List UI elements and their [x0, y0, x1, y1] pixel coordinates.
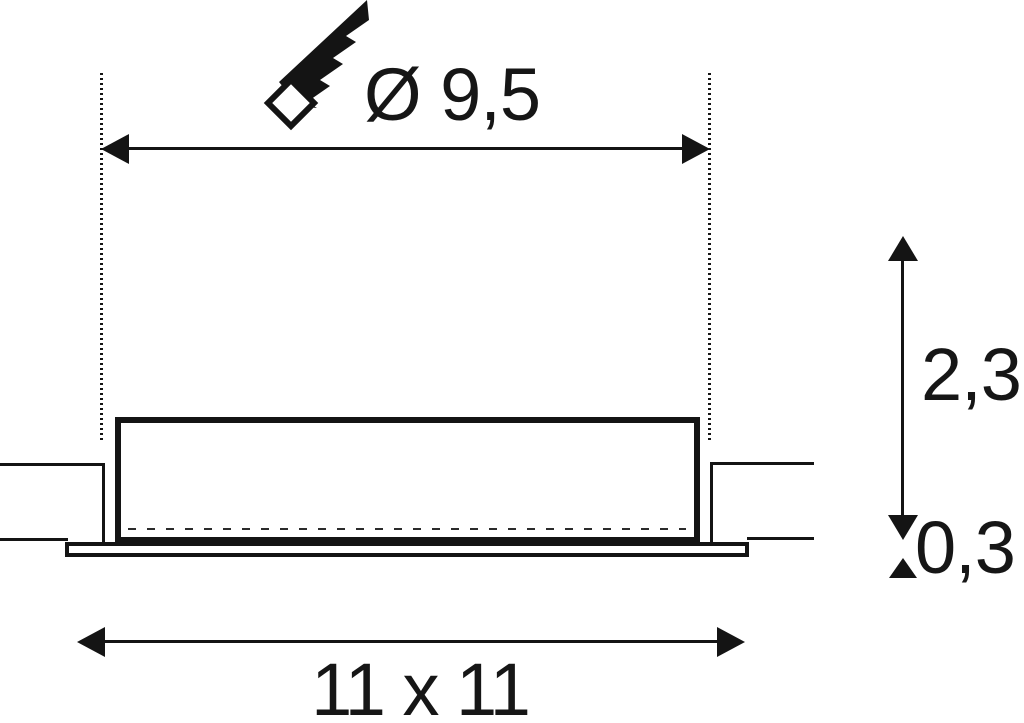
- fixture-housing-body: [115, 417, 700, 543]
- dimension-line-depth: [901, 255, 904, 520]
- extension-line-left: [100, 73, 103, 443]
- arrowhead-flange-bottom: [889, 558, 917, 578]
- technical-drawing-canvas: Ø 9,5 2,3 0,3 11 x 11: [0, 0, 1024, 723]
- ceiling-left-cut-edge: [102, 463, 105, 543]
- arrowhead-diameter-left: [101, 134, 129, 164]
- arrowhead-depth-bottom: [888, 515, 918, 540]
- flange-thickness-label: 0,3: [915, 511, 1015, 585]
- ceiling-right-bottom-line: [747, 537, 814, 540]
- fixture-trim-flange: [65, 542, 749, 557]
- arrowhead-depth-top: [888, 236, 918, 261]
- fixture-size-label: 11 x 11: [311, 653, 529, 723]
- recess-depth-label: 2,3: [921, 338, 1021, 412]
- ceiling-right-cut-edge: [710, 462, 713, 543]
- ceiling-left-bottom-line: [0, 538, 68, 541]
- arrowhead-size-left: [77, 627, 105, 657]
- ceiling-right-top-line: [710, 462, 814, 465]
- ceiling-left-top-line: [0, 463, 105, 466]
- arrowhead-size-right: [717, 627, 745, 657]
- arrowhead-diameter-right: [682, 134, 710, 164]
- dimension-line-diameter: [112, 147, 698, 150]
- cutout-diameter-label: Ø 9,5: [364, 58, 540, 132]
- extension-line-right: [708, 73, 711, 443]
- fixture-hidden-edge-dashed-line: [128, 528, 686, 530]
- dimension-line-size: [90, 640, 734, 643]
